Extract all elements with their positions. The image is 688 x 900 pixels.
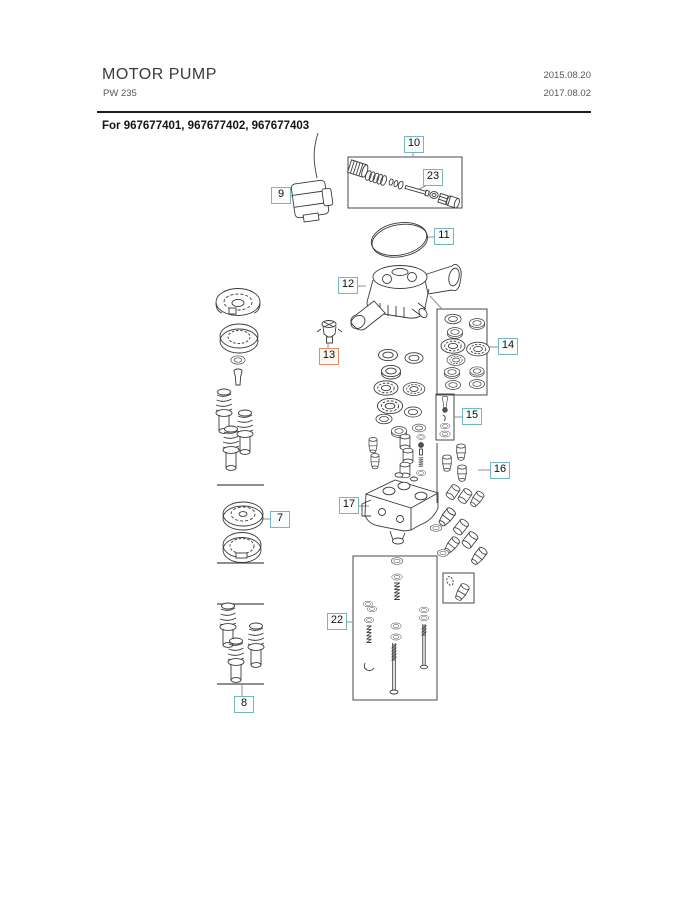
callout-7[interactable]: 7 (270, 511, 290, 528)
callout-17[interactable]: 17 (339, 497, 359, 514)
part-12-pump-head (348, 264, 461, 331)
part-10-valve-kit (348, 160, 461, 209)
part-13-valve (317, 321, 342, 344)
callout-10[interactable]: 10 (404, 136, 424, 153)
seal-stack (374, 349, 426, 437)
part-17-pump-body (362, 473, 438, 544)
callout-11[interactable]: 11 (434, 228, 454, 245)
exploded-pistons-right (430, 507, 488, 567)
part-11-oring (369, 218, 431, 261)
part-7-wobble-plate (223, 502, 263, 563)
callout-8[interactable]: 8 (234, 696, 254, 713)
callout-23[interactable]: 23 (423, 169, 443, 186)
callout-13[interactable]: 13 (319, 348, 339, 365)
small-kit-box-parts (446, 576, 470, 602)
callout-12[interactable]: 12 (338, 277, 358, 294)
callout-15[interactable]: 15 (462, 408, 482, 425)
parts-diagram-page: MOTOR PUMP PW 235 2015.08.20 2017.08.02 … (0, 0, 688, 900)
piston-set-upper (216, 389, 253, 470)
exploded-view-drawing (0, 0, 688, 900)
part-22-rod-kit (363, 558, 429, 694)
part-8-piston-set (220, 603, 264, 682)
part-14-seal-kit (441, 314, 489, 389)
part-16-fittings (443, 444, 485, 508)
valve-cartridges (369, 434, 426, 477)
callout-leader-lines (242, 152, 498, 696)
part-15-kit (440, 396, 450, 437)
callout-9[interactable]: 9 (271, 187, 291, 204)
callout-16[interactable]: 16 (490, 462, 510, 479)
callout-14[interactable]: 14 (498, 338, 518, 355)
part-9-switch (291, 133, 335, 223)
bearing-plate-assembly (216, 289, 260, 386)
callout-22[interactable]: 22 (327, 613, 347, 630)
